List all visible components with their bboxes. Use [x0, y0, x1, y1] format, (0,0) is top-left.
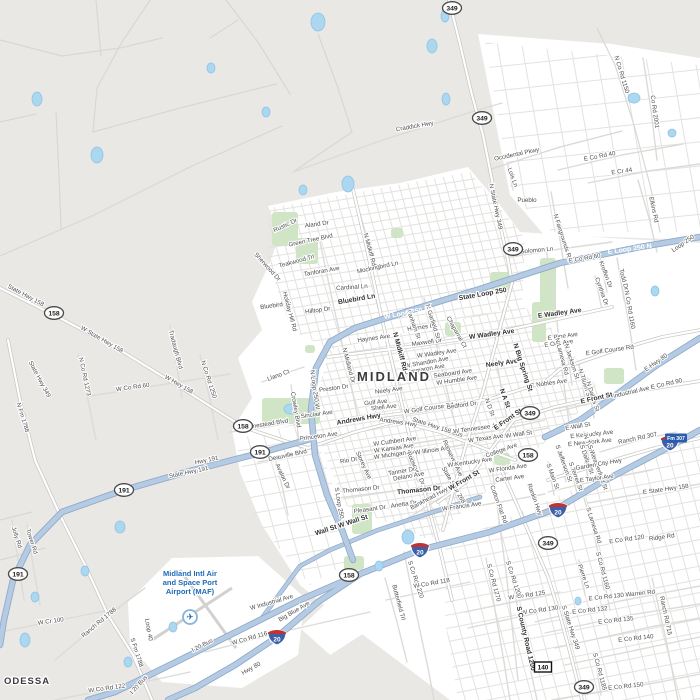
pond [651, 286, 659, 296]
fm-road-shield: Fm 307 [665, 434, 687, 443]
pond [342, 176, 354, 192]
pond [299, 185, 307, 195]
pond [311, 13, 325, 31]
city-label: MIDLAND [357, 369, 431, 384]
state-highway-shield: 158 [45, 307, 64, 320]
state-highway-shield: 349 [473, 112, 492, 125]
pond [375, 561, 383, 571]
road-label: 349 [578, 684, 590, 691]
pond [124, 657, 132, 667]
map-viewport[interactable]: Craddick HwyOccidental PkwyN Co Rd 1150C… [0, 0, 700, 700]
state-highway-shield: 349 [521, 407, 540, 420]
road-label: Fm 307 [667, 436, 685, 442]
state-highway-shield: 349 [539, 537, 558, 550]
map-canvas[interactable]: Craddick HwyOccidental PkwyN Co Rd 1150C… [0, 0, 700, 700]
road-label: 20 [666, 443, 674, 450]
state-highway-shield: 349 [443, 2, 462, 15]
state-highway-shield: 191 [9, 568, 28, 581]
pond [668, 129, 676, 137]
road-label: 20 [554, 510, 562, 517]
road-label: 158 [237, 423, 249, 430]
pond [81, 566, 89, 576]
airport-label: Midland Intl Air [163, 569, 217, 578]
pond [427, 39, 437, 53]
road-label: 349 [542, 540, 554, 547]
road-label: 349 [507, 246, 519, 253]
state-highway-shield: 349 [504, 243, 523, 256]
pond [115, 521, 125, 533]
pond [169, 622, 177, 632]
road-label: 158 [343, 572, 355, 579]
road-label: 158 [522, 452, 534, 459]
road-label: 349 [524, 410, 536, 417]
road-label: 191 [118, 487, 130, 494]
state-highway-shield: 191 [115, 484, 134, 497]
airport-icon: ✈ [183, 610, 197, 624]
road-label: ✈ [186, 612, 194, 622]
park [391, 228, 403, 238]
pond [91, 147, 103, 163]
road-label: 349 [446, 5, 458, 12]
state-highway-shield: 349 [575, 681, 594, 694]
park [305, 345, 315, 353]
state-highway-shield: 191 [251, 446, 270, 459]
pond [262, 107, 270, 117]
park [604, 368, 624, 384]
pond [575, 597, 581, 605]
pond [32, 92, 42, 106]
road-label: 349 [476, 115, 488, 122]
route-box-shield: 140 [535, 662, 552, 672]
road-label: 20 [273, 637, 281, 644]
pond [31, 592, 39, 602]
road-label: 20 [416, 550, 424, 557]
city-label: ODESSA [4, 676, 50, 687]
road-label: 140 [538, 664, 549, 671]
road-label: 191 [254, 449, 266, 456]
pond [442, 93, 450, 105]
state-highway-shield: 158 [340, 569, 359, 582]
pond [628, 93, 640, 103]
road-label: Pueblo [517, 197, 537, 204]
state-highway-shield: 158 [234, 420, 253, 433]
airport-label: Airport (MAF) [166, 587, 215, 596]
airport-label: and Space Port [163, 578, 218, 587]
road-label: 191 [12, 571, 24, 578]
state-highway-shield: 158 [519, 449, 538, 462]
pond [402, 530, 414, 544]
pond [20, 633, 30, 647]
road-label: 158 [48, 310, 60, 317]
pond [207, 63, 215, 73]
